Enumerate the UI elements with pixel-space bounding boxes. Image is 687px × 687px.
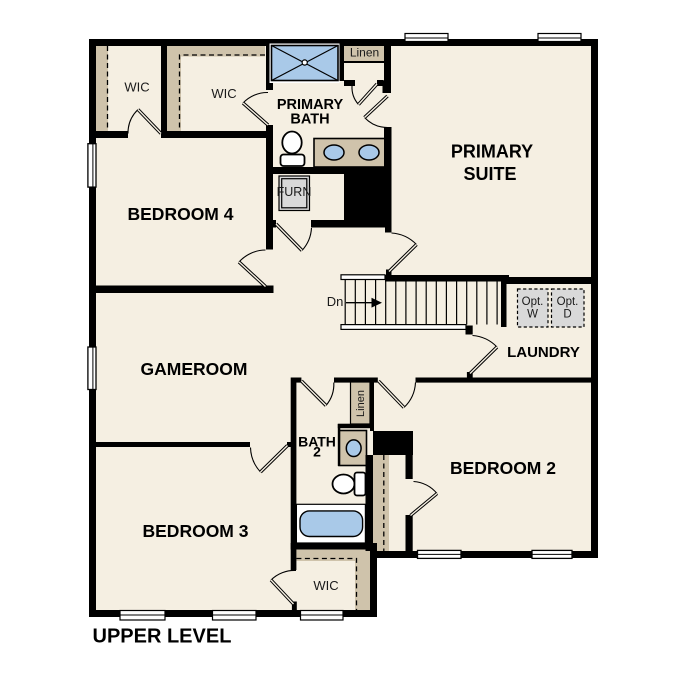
- svg-text:PRIMARY: PRIMARY: [451, 142, 533, 162]
- svg-text:Dn: Dn: [327, 294, 344, 309]
- svg-text:SUITE: SUITE: [463, 164, 516, 184]
- svg-text:FURN: FURN: [277, 185, 312, 199]
- svg-text:D: D: [563, 309, 571, 321]
- svg-text:GAMEROOM: GAMEROOM: [141, 359, 248, 379]
- svg-text:LAUNDRY: LAUNDRY: [507, 344, 580, 361]
- svg-text:UPPER LEVEL: UPPER LEVEL: [93, 626, 232, 648]
- svg-text:Linen: Linen: [350, 46, 379, 60]
- svg-text:BATH: BATH: [290, 112, 329, 128]
- svg-text:BEDROOM 3: BEDROOM 3: [143, 521, 249, 541]
- svg-text:WIC: WIC: [124, 80, 149, 95]
- svg-text:2: 2: [313, 444, 321, 460]
- svg-text:Opt.: Opt.: [557, 296, 579, 308]
- svg-text:BEDROOM 4: BEDROOM 4: [128, 204, 234, 224]
- svg-text:WIC: WIC: [313, 578, 338, 593]
- svg-text:Linen: Linen: [355, 390, 367, 417]
- svg-text:Opt.: Opt.: [522, 296, 544, 308]
- svg-text:WIC: WIC: [211, 86, 236, 101]
- svg-text:BEDROOM 2: BEDROOM 2: [450, 458, 556, 478]
- svg-text:W: W: [527, 309, 538, 321]
